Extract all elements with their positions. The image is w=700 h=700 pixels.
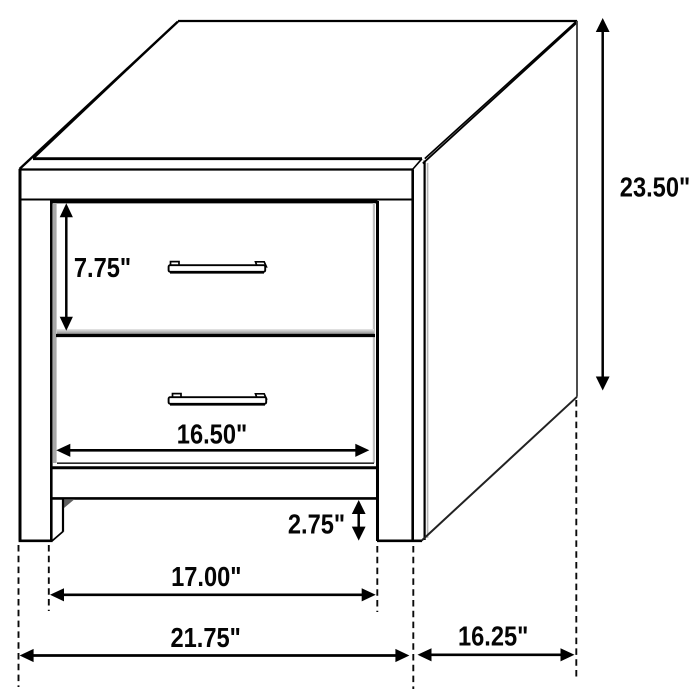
svg-text:2.75": 2.75" xyxy=(288,510,345,540)
svg-text:16.50": 16.50" xyxy=(177,420,247,450)
svg-text:17.00": 17.00" xyxy=(171,562,241,592)
svg-text:21.75": 21.75" xyxy=(171,623,241,653)
svg-text:16.25": 16.25" xyxy=(458,622,528,652)
svg-text:7.75": 7.75" xyxy=(74,253,131,283)
svg-text:23.50": 23.50" xyxy=(620,173,690,203)
